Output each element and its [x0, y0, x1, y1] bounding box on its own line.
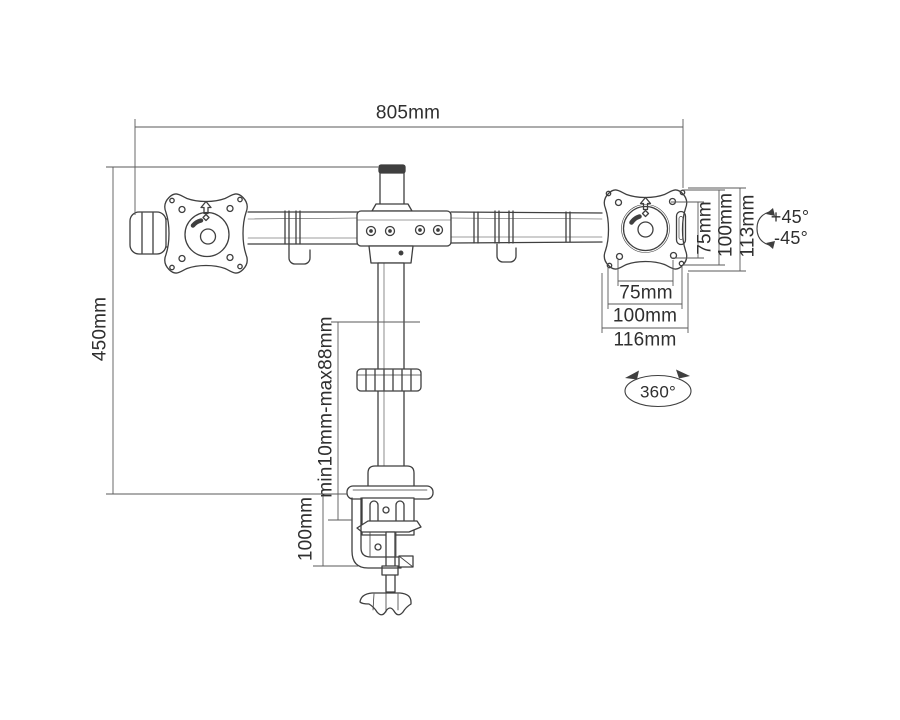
dimension-diagram: 805mm 450mm 75mm 100mm 113mm +45° -45° 7… [0, 0, 900, 720]
vesa-horizontal-100-label: 100mm [613, 307, 677, 326]
clamp-knob [360, 593, 411, 615]
plate-width-116-label: 116mm [614, 331, 677, 350]
arm-width-label: 805mm [376, 104, 440, 123]
swivel-rotation-label: 360° [640, 384, 676, 401]
vesa-vertical-100-label: 100mm [717, 193, 736, 257]
dim-clamp-height [313, 494, 358, 566]
pole-base-boss [368, 466, 414, 487]
vesa-vertical-75-label: 75mm [696, 201, 715, 255]
pole-height-label: 450mm [91, 297, 110, 361]
plate-height-113-label: 113mm [739, 195, 758, 258]
desk-clamp [347, 486, 433, 615]
pole-top [372, 165, 412, 212]
arm-left-tube [248, 211, 358, 244]
arm-center-block [357, 211, 451, 263]
center-pole [357, 263, 421, 487]
vesa-horizontal-75-label: 75mm [619, 284, 673, 303]
cable-clip-icon [289, 245, 310, 264]
mount-arm-drawing [130, 165, 775, 615]
tilt-up-angle-label: +45° [771, 208, 810, 226]
arm-right-tube [451, 211, 602, 243]
tilt-down-angle-label: -45° [774, 229, 808, 247]
mount-arm-line-art [0, 0, 900, 720]
clamp-height-label: 100mm [297, 497, 316, 561]
left-vesa-plate [165, 194, 247, 273]
height-adjust-ring [357, 369, 421, 391]
cable-clip-icon [497, 244, 516, 262]
clamp-range-label: min10mm-max88mm [317, 316, 336, 497]
